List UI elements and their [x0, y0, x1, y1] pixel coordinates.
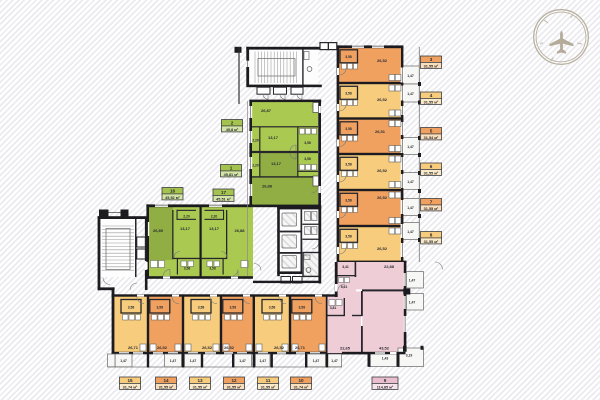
- svg-text:9: 9: [384, 378, 387, 383]
- svg-text:1,47: 1,47: [407, 145, 414, 149]
- svg-text:26,52: 26,52: [377, 97, 388, 102]
- svg-text:3,19: 3,19: [406, 354, 413, 358]
- svg-text:3,41: 3,41: [342, 265, 349, 269]
- svg-text:45,8 м²: 45,8 м²: [226, 128, 239, 132]
- svg-text:1,43: 1,43: [382, 357, 389, 361]
- svg-text:26,51: 26,51: [375, 129, 386, 134]
- svg-text:31,55 м²: 31,55 м²: [424, 64, 439, 68]
- svg-text:45,81 м²: 45,81 м²: [224, 173, 239, 177]
- svg-text:2,20: 2,20: [183, 215, 190, 219]
- svg-text:26,88: 26,88: [262, 184, 273, 189]
- svg-text:2,20: 2,20: [252, 164, 259, 168]
- svg-text:26,52: 26,52: [377, 195, 388, 200]
- svg-text:1,47: 1,47: [170, 359, 177, 363]
- svg-text:2,20: 2,20: [252, 139, 259, 143]
- svg-text:26,87: 26,87: [261, 108, 272, 113]
- svg-text:3,58: 3,58: [345, 199, 352, 203]
- svg-text:14: 14: [163, 378, 169, 383]
- svg-text:1,47: 1,47: [190, 359, 197, 363]
- svg-text:26,88: 26,88: [234, 228, 245, 233]
- svg-text:26,89: 26,89: [153, 228, 164, 233]
- svg-text:3,58: 3,58: [198, 306, 205, 310]
- svg-text:1,47: 1,47: [259, 359, 266, 363]
- svg-text:31,55 м²: 31,55 м²: [193, 385, 208, 389]
- svg-text:1,47: 1,47: [407, 74, 414, 78]
- svg-text:1,47: 1,47: [239, 359, 246, 363]
- svg-text:31,55 м²: 31,55 м²: [261, 385, 276, 389]
- svg-text:2,20: 2,20: [211, 215, 218, 219]
- svg-text:1,47: 1,47: [331, 359, 338, 363]
- svg-text:2: 2: [231, 121, 234, 126]
- svg-text:45,51 м²: 45,51 м²: [216, 197, 231, 201]
- svg-text:1,47: 1,47: [407, 92, 414, 96]
- svg-text:1,47: 1,47: [407, 206, 414, 210]
- svg-text:13,17: 13,17: [268, 135, 279, 140]
- svg-text:31,55 м²: 31,55 м²: [424, 240, 439, 244]
- svg-text:3: 3: [430, 57, 433, 62]
- svg-text:17: 17: [221, 190, 227, 195]
- svg-text:26,71: 26,71: [128, 345, 139, 350]
- svg-text:3,58: 3,58: [304, 141, 311, 145]
- svg-text:12: 12: [231, 378, 237, 383]
- svg-text:31,55 м²: 31,55 м²: [159, 385, 174, 389]
- svg-text:45,52 м²: 45,52 м²: [165, 196, 180, 200]
- svg-text:3,58: 3,58: [345, 55, 352, 59]
- svg-text:22,88: 22,88: [384, 264, 395, 269]
- svg-text:1,47: 1,47: [409, 301, 416, 305]
- svg-text:13,17: 13,17: [180, 226, 191, 231]
- svg-text:31,55 м²: 31,55 м²: [424, 207, 439, 211]
- svg-text:31,55 м²: 31,55 м²: [424, 171, 439, 175]
- svg-text:6: 6: [430, 164, 433, 169]
- svg-text:11: 11: [266, 378, 271, 383]
- svg-text:3,58: 3,58: [345, 235, 352, 239]
- svg-text:26,71: 26,71: [295, 345, 306, 350]
- svg-text:43,52: 43,52: [379, 346, 390, 351]
- svg-text:13,17: 13,17: [209, 226, 220, 231]
- svg-text:26,52: 26,52: [377, 168, 388, 173]
- svg-text:3,58: 3,58: [184, 267, 191, 271]
- svg-text:31,74 м²: 31,74 м²: [123, 385, 138, 389]
- svg-text:31,54 м²: 31,54 м²: [424, 136, 439, 140]
- svg-text:15: 15: [127, 378, 133, 383]
- svg-text:3,58: 3,58: [345, 127, 352, 131]
- svg-text:3,58: 3,58: [304, 157, 311, 161]
- svg-text:3,58: 3,58: [209, 267, 216, 271]
- svg-text:3,58: 3,58: [298, 306, 305, 310]
- svg-text:1,47: 1,47: [313, 359, 320, 363]
- svg-text:1,47: 1,47: [120, 359, 127, 363]
- svg-text:31,55 м²: 31,55 м²: [424, 100, 439, 104]
- svg-text:1,47: 1,47: [409, 279, 416, 283]
- svg-text:26,52: 26,52: [202, 345, 213, 350]
- svg-text:5: 5: [430, 129, 433, 134]
- svg-text:3,58: 3,58: [128, 306, 135, 310]
- svg-text:114,85 м²: 114,85 м²: [377, 385, 394, 389]
- svg-text:26,52: 26,52: [274, 345, 285, 350]
- svg-text:26,52: 26,52: [377, 58, 388, 63]
- svg-text:31,55 м²: 31,55 м²: [227, 385, 242, 389]
- svg-text:13: 13: [197, 378, 203, 383]
- svg-text:4: 4: [430, 93, 433, 98]
- svg-text:22,65: 22,65: [340, 346, 351, 351]
- svg-text:3,81: 3,81: [330, 306, 337, 310]
- svg-text:3,58: 3,58: [229, 306, 236, 310]
- svg-text:26,52: 26,52: [157, 345, 168, 350]
- svg-text:3,58: 3,58: [345, 92, 352, 96]
- svg-text:26,52: 26,52: [224, 345, 235, 350]
- svg-text:7: 7: [430, 200, 433, 205]
- svg-text:8: 8: [430, 233, 433, 238]
- svg-text:31,74 м²: 31,74 м²: [294, 385, 309, 389]
- svg-text:10: 10: [298, 378, 304, 383]
- svg-text:3,58: 3,58: [156, 306, 163, 310]
- svg-text:16: 16: [170, 189, 176, 194]
- svg-text:26,52: 26,52: [377, 246, 388, 251]
- svg-text:1: 1: [230, 166, 233, 171]
- svg-text:3,58: 3,58: [345, 163, 352, 167]
- svg-text:1,47: 1,47: [407, 180, 414, 184]
- svg-text:3,58: 3,58: [269, 306, 276, 310]
- svg-text:13,17: 13,17: [271, 161, 282, 166]
- svg-text:1,47: 1,47: [407, 230, 414, 234]
- svg-text:8,61: 8,61: [341, 285, 348, 289]
